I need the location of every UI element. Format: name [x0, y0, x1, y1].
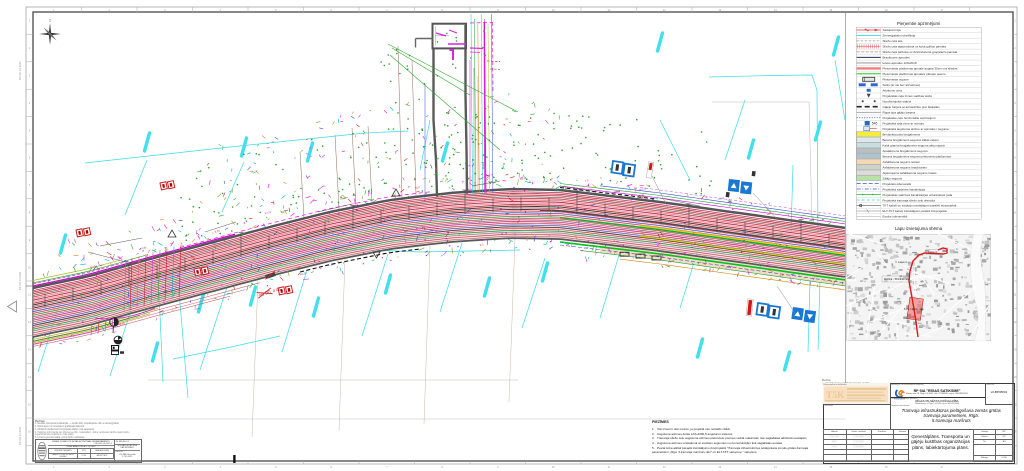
- svg-text:5.trv. / Ģimn. iela: 5.trv. / Ģimn. iela: [904, 307, 924, 311]
- svg-text:5: 5: [1014, 128, 1016, 132]
- svg-text:Kv.31: Kv.31: [639, 186, 647, 192]
- svg-text:Asfaltbetona segums ietvēm: Asfaltbetona segums ietvēm: [882, 160, 920, 164]
- svg-text:11: 11: [28, 293, 31, 297]
- svg-text:5: 5: [275, 465, 277, 469]
- svg-text:6: 6: [1014, 156, 1016, 160]
- svg-text:Sliežu ceļa ass: Sliežu ceļa ass: [882, 39, 903, 43]
- svg-text:Kaltā granīta bruģakmens segum: Kaltā granīta bruģakmens seguma aleju ra…: [882, 143, 945, 148]
- svg-text:BP-GP-01-2021: BP-GP-01-2021: [18, 426, 22, 445]
- svg-text:15: 15: [829, 465, 832, 469]
- svg-text:2: 2: [1014, 46, 1016, 50]
- svg-text:7: 7: [386, 465, 388, 469]
- svg-text:Sliežu ceļa pārbūve uz dzelzsb: Sliežu ceļa pārbūve uz dzelzsbetona grop…: [882, 50, 957, 54]
- svg-text:11: 11: [1014, 293, 1017, 297]
- svg-text:14: 14: [28, 375, 31, 379]
- svg-text:15: 15: [28, 402, 31, 406]
- svg-text:8: 8: [29, 211, 31, 215]
- svg-text:13: 13: [1014, 348, 1017, 352]
- svg-text:Sliežu ceļa atjaunošana uz kok: Sliežu ceļa atjaunošana uz koka gulšņu p…: [882, 45, 946, 49]
- svg-text:3: 3: [164, 465, 166, 469]
- svg-text:6: 6: [29, 156, 31, 160]
- svg-text:1: 1: [29, 19, 31, 23]
- svg-text:Brīvlaukta josla bruģakmens: Brīvlaukta josla bruģakmens: [882, 132, 920, 137]
- svg-text:9.3: 9.3: [479, 242, 484, 247]
- svg-text:Projektētie ceļu horizontālie: Projektētie ceļu horizontālie apzīmējumi: [882, 116, 935, 120]
- svg-text:+0.38: +0.38: [519, 176, 527, 182]
- svg-text:Projektētā ceļa zīme ar numuru: Projektētā ceļa zīme ar numuru: [882, 122, 924, 126]
- svg-text:7: 7: [29, 183, 31, 187]
- svg-text:Betona bruģakmens seguma sildā: Betona bruģakmens seguma sildās ceļiem: [882, 137, 939, 142]
- svg-text:Kv.23: Kv.23: [264, 210, 272, 216]
- svg-text:7: 7: [1014, 183, 1016, 187]
- svg-text:BP-GP-01-2021: BP-GP-01-2021: [18, 61, 22, 80]
- svg-text:10: 10: [28, 265, 31, 269]
- svg-text:13: 13: [28, 348, 31, 352]
- svg-text:10: 10: [552, 465, 555, 469]
- svg-text:16: 16: [885, 465, 888, 469]
- svg-text:14: 14: [774, 465, 777, 469]
- svg-text:10: 10: [1014, 265, 1017, 269]
- svg-text:4: 4: [29, 101, 31, 105]
- svg-text:Pieturvietas platformas apmale: Pieturvietas platformas apmale augsta 30…: [882, 67, 957, 71]
- svg-text:11: 11: [607, 465, 610, 469]
- svg-text:Rīgas tipa gājēju barjera: Rīgas tipa gājēju barjera: [882, 111, 915, 115]
- svg-text:+0.31: +0.31: [717, 195, 725, 201]
- svg-text:Gājēju barjera ar aizsardzību: Gājēju barjera ar aizsardzību pret šļaka…: [882, 105, 940, 109]
- svg-text:Zālāju segums: Zālāju segums: [882, 176, 902, 180]
- svg-text:Atjaunojams asfaltbetona segum: Atjaunojams asfaltbetona segums trasēs: [882, 171, 937, 175]
- svg-text:2: 2: [29, 46, 31, 50]
- svg-text:Projektētās sadzīves kanalizāc: Projektētās sadzīves kanalizācijas uztur…: [882, 193, 952, 197]
- svg-text:Betona bruģakmens segums pietu: Betona bruģakmens segums pieturvietu pla…: [882, 154, 951, 159]
- svg-text:Lapa nn: Lapa nn: [898, 260, 908, 264]
- svg-text:TKT kabeli un situāciju izstrā: TKT kabeli un situāciju izstrādājumi par…: [882, 204, 956, 208]
- svg-text:+0.35: +0.35: [139, 245, 147, 251]
- svg-text:Asfaltbetona segums brauktuvēm: Asfaltbetona segums brauktuvēm: [882, 165, 927, 169]
- svg-text:Projektētās ceļa zīmes vadības: Projektētās ceļa zīmes vadības stabs: [882, 94, 932, 98]
- svg-text:Norobežojošie stabiņi: Norobežojošie stabiņi: [882, 100, 911, 104]
- svg-text:Ietves apmales 100x20x8: Ietves apmales 100x20x8: [882, 61, 916, 65]
- svg-text:Pieturvietas platformas apmale: Pieturvietas platformas apmales pārejas …: [882, 72, 946, 76]
- svg-text:Esošie inženiertīkli: Esošie inženiertīkli: [882, 215, 907, 219]
- svg-text:Projektēts ūdensvads: Projektēts ūdensvads: [882, 182, 911, 186]
- svg-text:BP-GP-01-2021: BP-GP-01-2021: [18, 271, 22, 290]
- svg-text:13: 13: [718, 465, 721, 469]
- svg-text:T5K: T5K: [826, 391, 845, 401]
- svg-text:546: 546: [871, 122, 877, 126]
- svg-text:3: 3: [1014, 74, 1016, 78]
- svg-text:6: 6: [330, 465, 332, 469]
- svg-text:Projektētā augstuma atzīme ar: Projektētā augstuma atzīme ar apmales / …: [882, 127, 949, 131]
- svg-text:4: 4: [219, 465, 221, 469]
- svg-text:9: 9: [29, 238, 31, 242]
- svg-text:8: 8: [441, 465, 443, 469]
- svg-text:1: 1: [1014, 19, 1016, 23]
- svg-text:Soliņi (ar vai bez atzveltnes): Soliņi (ar vai bez atzveltnes): [882, 83, 920, 87]
- svg-text:14: 14: [1014, 375, 1017, 379]
- svg-text:Atkritumu urna: Atkritumu urna: [882, 89, 902, 93]
- svg-text:16: 16: [28, 430, 31, 434]
- svg-text:Sarkanā līnija: Sarkanā līnija: [882, 28, 901, 32]
- svg-text:8: 8: [1014, 211, 1016, 215]
- svg-text:Brauktuves apmales: Brauktuves apmales: [882, 56, 910, 60]
- svg-text:Z: Z: [49, 19, 51, 23]
- svg-text:7.9: 7.9: [584, 178, 589, 183]
- svg-text:10.2: 10.2: [414, 185, 420, 190]
- svg-text:Projektētā tramvaja sliežu ceļ: Projektētā tramvaja sliežu ceļu drenāža: [882, 198, 935, 202]
- svg-text:5: 5: [29, 128, 31, 132]
- svg-text:9: 9: [1014, 238, 1016, 242]
- svg-text:1: 1: [53, 465, 55, 469]
- svg-text:12: 12: [1014, 320, 1017, 324]
- svg-text:Zemesgabalu robežlīnija: Zemesgabalu robežlīnija: [882, 34, 915, 38]
- svg-text:3: 3: [29, 74, 31, 78]
- svg-text:Grīziņk. / Brīvības iela: Grīziņk. / Brīvības iela: [884, 277, 910, 281]
- svg-text:Apaļakmens bruģakmens segums: Apaļakmens bruģakmens segums: [882, 148, 928, 153]
- svg-text:4: 4: [1014, 101, 1016, 105]
- svg-text:12: 12: [28, 320, 31, 324]
- svg-text:Lapa nn: Lapa nn: [928, 250, 938, 254]
- svg-text:17: 17: [940, 465, 943, 469]
- svg-text:Pieturvietas nojume: Pieturvietas nojume: [882, 78, 909, 82]
- svg-text:12: 12: [663, 465, 666, 469]
- svg-text:+0.42: +0.42: [339, 195, 347, 201]
- svg-text:Projektētā sadzīves kanalizāci: Projektētā sadzīves kanalizācija: [882, 187, 925, 191]
- svg-text:9: 9: [497, 465, 499, 469]
- svg-text:ELT-TKT kabeļi izstrādājumi pa: ELT-TKT kabeļi izstrādājumi paralēli būv…: [882, 209, 946, 213]
- svg-text:2: 2: [108, 465, 110, 469]
